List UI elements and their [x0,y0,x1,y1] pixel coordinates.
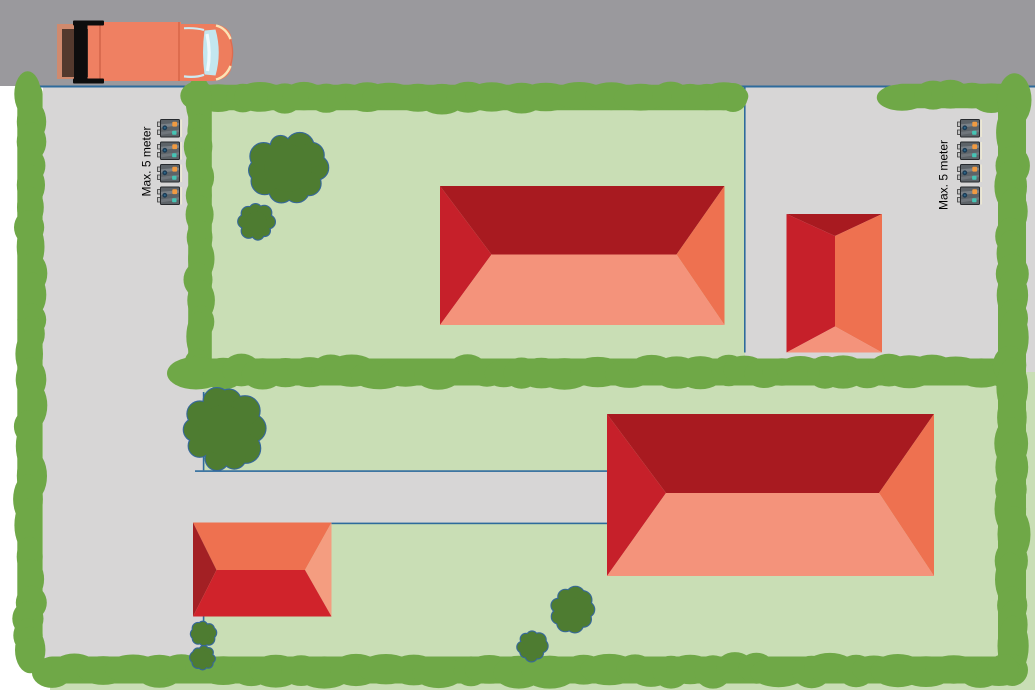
svg-text:Max. 5 meter: Max. 5 meter [937,140,951,210]
svg-text:Max. 5 meter: Max. 5 meter [140,126,154,196]
